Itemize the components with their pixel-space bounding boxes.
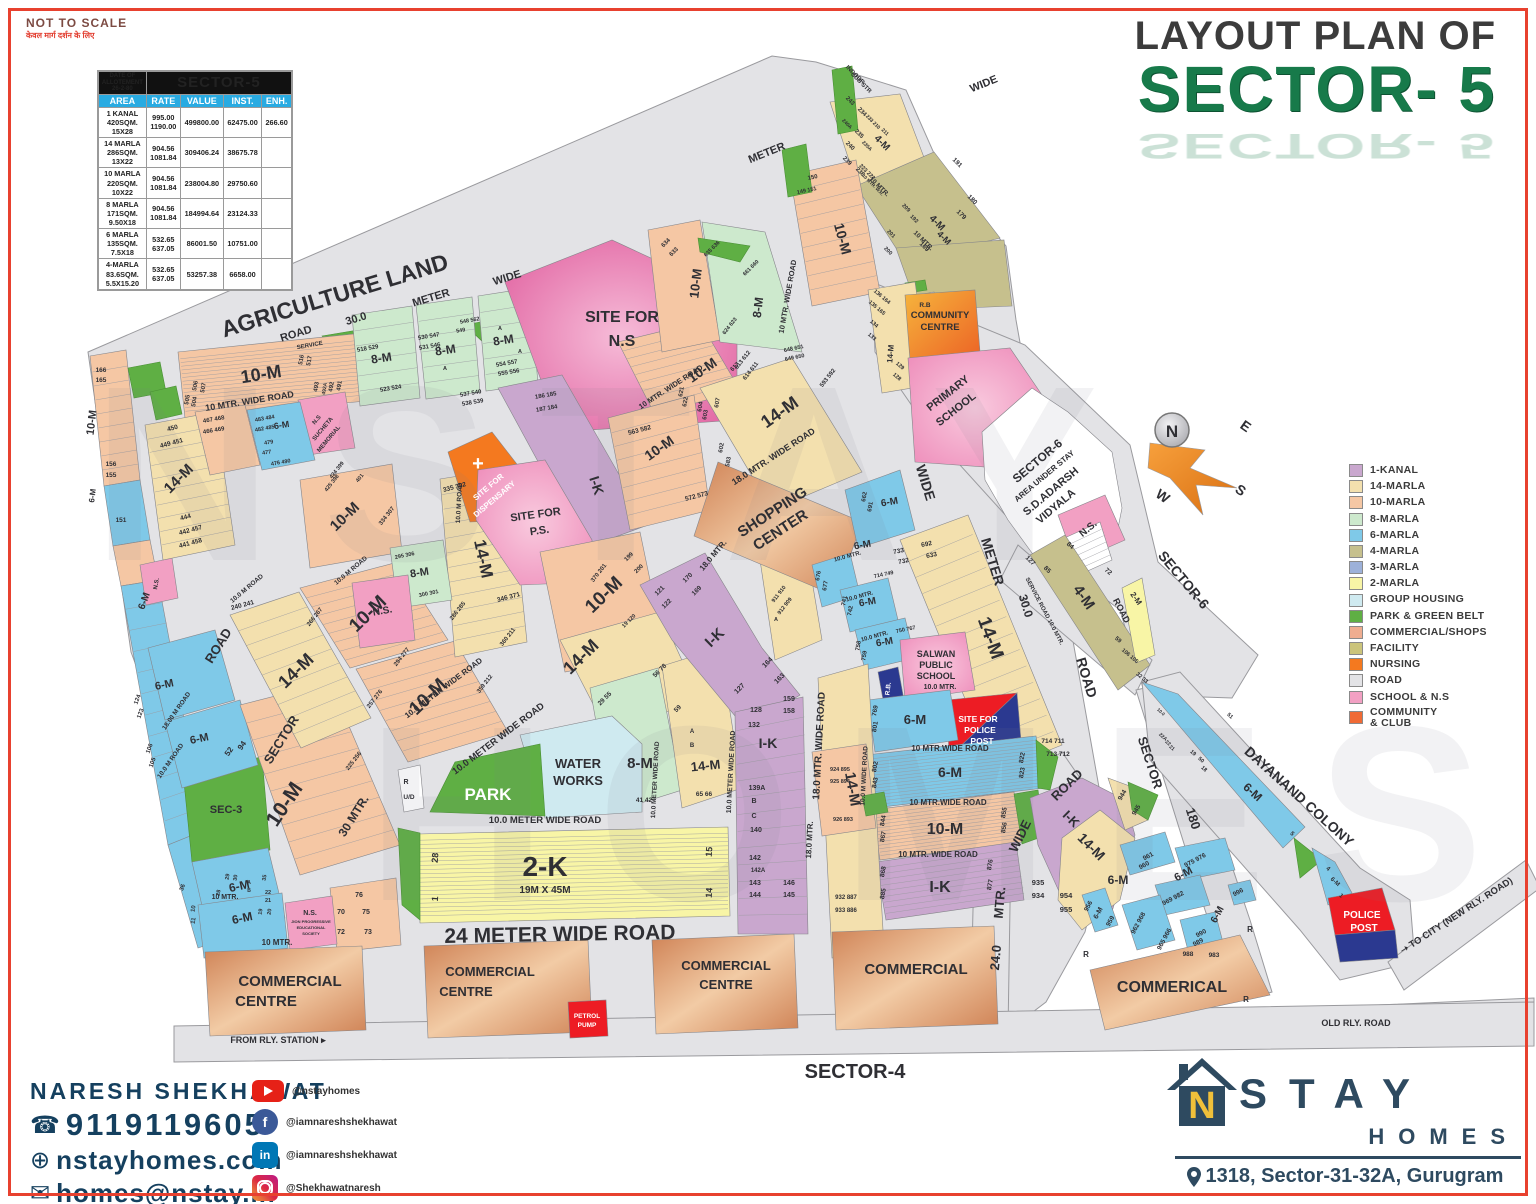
rate-cell: 10 MARLA 220SQM. 10X22 bbox=[99, 168, 147, 198]
rate-cell: 4-MARLA 83.6SQM. 5.5X15.20 bbox=[99, 259, 147, 289]
map-label: 165 bbox=[96, 377, 107, 384]
table-sector-title: SECTOR-5 bbox=[146, 72, 291, 95]
map-label: 70 bbox=[337, 909, 345, 916]
not-to-scale-note: NOT TO SCALE केवल मार्ग दर्शन के लिए bbox=[26, 16, 127, 41]
legend-label: 3-MARLA bbox=[1370, 562, 1419, 573]
map-label: 8-M bbox=[627, 755, 653, 772]
legend-item: 4-MARLA bbox=[1349, 545, 1487, 558]
legend-item: FACILITY bbox=[1349, 642, 1487, 655]
map-label: WORKS bbox=[553, 773, 603, 788]
map-label: U/D bbox=[403, 794, 415, 801]
page-title: LAYOUT PLAN OF SECTOR- 5 SECTOR- 5 bbox=[1135, 14, 1496, 171]
allotment-date: DATE OF ALLOTEMENT 26-2-80 bbox=[99, 72, 147, 95]
map-label: COMMUNITY bbox=[911, 310, 970, 321]
rate-cell bbox=[262, 168, 292, 198]
rate-row: 8 MARLA 171SQM. 9.50X18904.56 1081.84184… bbox=[99, 198, 292, 228]
map-label: 10 MTR.WIDE ROAD bbox=[909, 798, 987, 807]
rate-cell: 904.56 1081.84 bbox=[146, 198, 180, 228]
map-label: 144 bbox=[749, 892, 761, 899]
rate-row: 1 KANAL 420SQM. 15X28995.00 1190.0049980… bbox=[99, 107, 292, 137]
legend-item: 14-MARLA bbox=[1349, 480, 1487, 493]
map-label: 14 bbox=[704, 887, 715, 898]
legend-item: COMMUNITY & CLUB bbox=[1349, 707, 1487, 729]
rate-row: 10 MARLA 220SQM. 10X22904.56 1081.842380… bbox=[99, 168, 292, 198]
logo-divider bbox=[1175, 1156, 1521, 1159]
map-label: SITE FOR bbox=[958, 714, 997, 724]
map-label: 76 bbox=[355, 892, 363, 899]
map-label: 24.0 bbox=[987, 944, 1004, 971]
map-label: W bbox=[1153, 486, 1174, 507]
brand-address: 1318, Sector-31-32A, Gurugram bbox=[1206, 1165, 1504, 1188]
legend-item: SCHOOL & N.S bbox=[1349, 691, 1487, 704]
map-label: COMMERCIAL bbox=[238, 973, 341, 990]
legend-swatch bbox=[1349, 513, 1363, 526]
map-label: 142A bbox=[751, 868, 766, 874]
map-label: 166 bbox=[96, 367, 107, 374]
rate-cell: 62475.00 bbox=[223, 107, 261, 137]
map-label: 155 bbox=[106, 472, 117, 479]
map-label: S bbox=[1232, 481, 1249, 499]
map-label: 10-M bbox=[927, 821, 963, 838]
house-icon: N bbox=[1165, 1056, 1239, 1130]
col-area: AREA bbox=[99, 94, 147, 107]
legend-item: COMMERCIAL/SHOPS bbox=[1349, 626, 1487, 639]
map-label: PUMP bbox=[578, 1022, 597, 1029]
social-links: @nstayhomes f @iamnareshshekhawat in @ia… bbox=[252, 1080, 397, 1204]
map-label: R.B bbox=[919, 302, 931, 309]
map-label: 925 894 bbox=[830, 779, 851, 785]
rate-cell bbox=[262, 259, 292, 289]
map-label: 6-M bbox=[938, 764, 962, 780]
map-label: N.S. bbox=[303, 910, 317, 917]
map-label: MTR. bbox=[991, 886, 1009, 919]
legend-swatch bbox=[1349, 577, 1363, 590]
legend-item: ROAD bbox=[1349, 674, 1487, 687]
map-label: E bbox=[1237, 417, 1254, 435]
map-label: 145 bbox=[783, 892, 795, 899]
map-label: I-K bbox=[929, 879, 951, 896]
legend-swatch bbox=[1349, 610, 1363, 623]
website-link[interactable]: nstayhomes.com bbox=[56, 1145, 282, 1176]
map-label: POST bbox=[970, 736, 994, 746]
linkedin-icon[interactable]: in bbox=[252, 1142, 278, 1168]
rate-row: 4-MARLA 83.6SQM. 5.5X15.20532.65 637.055… bbox=[99, 259, 292, 289]
rate-cell: 29750.60 bbox=[223, 168, 261, 198]
legend-swatch bbox=[1349, 529, 1363, 542]
legend-items: 1-KANAL14-MARLA10-MARLA8-MARLA6-MARLA4-M… bbox=[1349, 464, 1487, 729]
phone-icon: ☎ bbox=[30, 1111, 60, 1140]
globe-icon: ⊕ bbox=[30, 1146, 50, 1175]
map-label: OLD RLY. ROAD bbox=[1321, 1018, 1391, 1028]
map-label: 28 bbox=[430, 852, 441, 863]
map-label: EDUCATIONAL bbox=[297, 925, 326, 930]
legend-item: 8-MARLA bbox=[1349, 513, 1487, 526]
rate-cell: 10751.00 bbox=[223, 229, 261, 259]
map-label: JION PROGRESSIVE bbox=[291, 919, 331, 924]
map-label: 146 bbox=[783, 880, 795, 887]
map-label: 955 bbox=[1060, 905, 1073, 914]
map-label: 924 895 bbox=[830, 767, 850, 773]
map-label: 983 bbox=[1209, 952, 1220, 959]
rate-cell: 38675.78 bbox=[223, 138, 261, 168]
legend-item: GROUP HOUSING bbox=[1349, 594, 1487, 607]
legend-swatch bbox=[1349, 642, 1363, 655]
map-label: 10 MTR. WIDE ROAD bbox=[898, 850, 978, 859]
legend-label: COMMUNITY & CLUB bbox=[1370, 707, 1437, 729]
rate-row: 6 MARLA 135SQM. 7.5X18532.65 637.0586001… bbox=[99, 229, 292, 259]
legend-swatch bbox=[1349, 711, 1363, 724]
legend-label: 4-MARLA bbox=[1370, 546, 1419, 557]
map-label: C bbox=[751, 813, 756, 820]
legend-item: 1-KANAL bbox=[1349, 464, 1487, 477]
mail-icon: ✉ bbox=[30, 1179, 50, 1204]
not-to-scale-text: NOT TO SCALE bbox=[26, 16, 127, 30]
brand-address-row: 1318, Sector-31-32A, Gurugram bbox=[1165, 1165, 1525, 1188]
legend-item: NURSING bbox=[1349, 658, 1487, 671]
map-label: A bbox=[247, 880, 251, 886]
map-label: 41 42 bbox=[636, 797, 653, 804]
map-label: CENTRE bbox=[699, 977, 753, 992]
legend-swatch bbox=[1349, 561, 1363, 574]
map-label: SALWAN bbox=[917, 649, 956, 659]
rate-cell: 904.56 1081.84 bbox=[146, 168, 180, 198]
col-rate: RATE bbox=[146, 94, 180, 107]
rate-cell: 6658.00 bbox=[223, 259, 261, 289]
phone-number[interactable]: 9119119605 bbox=[66, 1107, 265, 1143]
map-label: 132 bbox=[748, 722, 760, 729]
map-label: SCHOOL bbox=[917, 671, 956, 681]
rate-cell: 266.60 bbox=[262, 107, 292, 137]
linkedin-handle: @iamnareshshekhawat bbox=[286, 1150, 397, 1161]
rate-cell: 86001.50 bbox=[180, 229, 223, 259]
legend-label: FACILITY bbox=[1370, 643, 1419, 654]
instagram-handle: @Shekhawatnaresh bbox=[286, 1183, 381, 1194]
legend-label: COMMERCIAL/SHOPS bbox=[1370, 627, 1487, 638]
legend-item: 2-MARLA bbox=[1349, 577, 1487, 590]
col-value: VALUE bbox=[180, 94, 223, 107]
map-label: R bbox=[1247, 925, 1253, 934]
facebook-handle: @iamnareshshekhawat bbox=[286, 1117, 397, 1128]
map-label: B bbox=[247, 888, 251, 894]
legend-swatch bbox=[1349, 496, 1363, 509]
map-label: CENTRE bbox=[439, 984, 493, 999]
map-label: SOCIETY bbox=[302, 931, 320, 936]
rate-row: 14 MARLA 286SQM. 13X22904.56 1081.843094… bbox=[99, 138, 292, 168]
map-label: 19 bbox=[258, 908, 265, 915]
rate-cell bbox=[262, 138, 292, 168]
rate-cell: 309406.24 bbox=[180, 138, 223, 168]
map-label: R bbox=[403, 779, 408, 786]
legend-swatch bbox=[1349, 594, 1363, 607]
map-label: 75 bbox=[362, 909, 370, 916]
map-label: 158 bbox=[783, 708, 795, 715]
map-label: + bbox=[472, 453, 484, 475]
map-label: 934 bbox=[1032, 891, 1045, 900]
rate-cell: 238004.80 bbox=[180, 168, 223, 198]
rate-cell: 14 MARLA 286SQM. 13X22 bbox=[99, 138, 147, 168]
map-label: 159 bbox=[783, 696, 795, 703]
legend-item: 10-MARLA bbox=[1349, 496, 1487, 509]
map-label: PARK bbox=[465, 785, 513, 804]
rates-body: 1 KANAL 420SQM. 15X28995.00 1190.0049980… bbox=[99, 107, 292, 289]
title-line2: SECTOR- 5 bbox=[1135, 59, 1496, 120]
map-label: A bbox=[518, 349, 522, 355]
map-label: 954 bbox=[1060, 891, 1073, 900]
legend-label: 2-MARLA bbox=[1370, 578, 1419, 589]
map-label: 2-K bbox=[522, 851, 567, 882]
linkedin-row[interactable]: in @iamnareshshekhawat bbox=[252, 1142, 397, 1168]
table-columns: AREARATEVALUEINST.ENH. bbox=[99, 94, 292, 107]
legend-swatch bbox=[1349, 545, 1363, 558]
map-label: 140 bbox=[750, 827, 762, 834]
map-label: CENTRE bbox=[235, 993, 297, 1010]
map-label: I-K bbox=[759, 735, 778, 751]
legend-label: ROAD bbox=[1370, 675, 1402, 686]
title-reflection: SECTOR- 5 bbox=[1135, 131, 1496, 159]
instagram-icon[interactable] bbox=[252, 1175, 278, 1201]
rate-cell bbox=[262, 229, 292, 259]
rate-cell: 995.00 1190.00 bbox=[146, 107, 180, 137]
map-label: POLICE bbox=[1343, 910, 1381, 921]
map-label: 24 METER WIDE ROAD bbox=[444, 921, 675, 948]
rate-cell: 6 MARLA 135SQM. 7.5X18 bbox=[99, 229, 147, 259]
map-label: 30 bbox=[233, 874, 240, 881]
map-label: 6-M bbox=[1108, 873, 1129, 887]
map-label: 143 bbox=[749, 880, 761, 887]
legend-label: 14-MARLA bbox=[1370, 481, 1425, 492]
rate-cell: 53257.38 bbox=[180, 259, 223, 289]
rates-table: DATE OF ALLOTEMENT 26-2-80 SECTOR-5 AREA… bbox=[98, 71, 292, 290]
logo-stay: STAY bbox=[1239, 1070, 1432, 1118]
legend-swatch bbox=[1349, 658, 1363, 671]
map-label: SITE FOR bbox=[585, 309, 659, 326]
map-label: 65 66 bbox=[696, 791, 713, 798]
rate-cell: 532.65 637.05 bbox=[146, 229, 180, 259]
layout-plan-page: NSTAYHOMESAGRICULTURE LANDROAD30.0METERW… bbox=[0, 0, 1536, 1204]
map-label: 933 886 bbox=[835, 908, 857, 914]
legend-label: SCHOOL & N.S bbox=[1370, 692, 1449, 703]
map-label: 15 bbox=[704, 846, 715, 857]
youtube-handle: @nstayhomes bbox=[292, 1086, 360, 1097]
map-label: N.S bbox=[609, 333, 636, 350]
map-label: 713 712 bbox=[1046, 751, 1070, 758]
map-label: 151 bbox=[116, 517, 127, 524]
hindi-note: केवल मार्ग दर्शन के लिए bbox=[26, 30, 127, 41]
map-label: 19M X 45M bbox=[519, 885, 570, 896]
map-label: B bbox=[751, 798, 756, 805]
map-label: FROM RLY. STATION ▸ bbox=[230, 1035, 326, 1045]
map-label: 714 711 bbox=[1041, 738, 1065, 745]
map-label: WATER bbox=[555, 756, 602, 771]
legend-label: 8-MARLA bbox=[1370, 514, 1419, 525]
map-label: 935 bbox=[1032, 878, 1045, 887]
map-label: CENTRE bbox=[920, 322, 959, 333]
legend-label: GROUP HOUSING bbox=[1370, 594, 1464, 605]
logo-n: N bbox=[1188, 1085, 1215, 1127]
map-label: 926 893 bbox=[833, 817, 853, 823]
brand-logo: N STAY HOMES 1318, Sector-31-32A, Gurugr… bbox=[1165, 1056, 1525, 1188]
col-enh: ENH. bbox=[262, 94, 292, 107]
map-label: COMMERICAL bbox=[1117, 979, 1227, 996]
map-area bbox=[205, 946, 366, 1036]
youtube-row[interactable]: @nstayhomes bbox=[252, 1080, 397, 1102]
map-label: 21 bbox=[265, 898, 271, 904]
email-link[interactable]: homes@nstay.in bbox=[56, 1178, 275, 1204]
rate-cell: 8 MARLA 171SQM. 9.50X18 bbox=[99, 198, 147, 228]
rate-cell: 1 KANAL 420SQM. 15X28 bbox=[99, 107, 147, 137]
map-label: 20 bbox=[267, 908, 274, 915]
map-label: 10.0 MTR. bbox=[924, 684, 957, 691]
youtube-icon[interactable] bbox=[252, 1080, 284, 1102]
rate-cell: 904.56 1081.84 bbox=[146, 138, 180, 168]
legend-item: 6-MARLA bbox=[1349, 529, 1487, 542]
map-label: A bbox=[443, 366, 447, 372]
instagram-row[interactable]: @Shekhawatnaresh bbox=[252, 1175, 397, 1201]
map-label: 35 bbox=[262, 874, 269, 881]
map-label: COMMERCIAL bbox=[445, 964, 535, 979]
map-label: SECTOR-4 bbox=[805, 1061, 907, 1083]
facebook-icon[interactable]: f bbox=[252, 1109, 278, 1135]
map-label: 28 bbox=[216, 889, 223, 896]
map-label: SEC-3 bbox=[210, 804, 242, 816]
map-label: 10.0 METER WIDE ROAD bbox=[489, 815, 602, 826]
map-label: 6-M bbox=[87, 488, 98, 503]
rate-cell: 23124.33 bbox=[223, 198, 261, 228]
map-label: 191 bbox=[951, 157, 964, 170]
map-label: 988 bbox=[1183, 951, 1194, 958]
map-label: 8-M bbox=[750, 296, 766, 318]
map-label: 128 bbox=[750, 707, 762, 714]
legend-label: NURSING bbox=[1370, 659, 1421, 670]
map-label: 73 bbox=[364, 929, 372, 936]
legend-swatch bbox=[1349, 464, 1363, 477]
legend-swatch bbox=[1349, 691, 1363, 704]
map-label: 139A bbox=[749, 785, 766, 792]
map-label: N bbox=[1166, 422, 1178, 441]
legend-item: 3-MARLA bbox=[1349, 561, 1487, 574]
map-label: 10 MTR. bbox=[262, 938, 293, 947]
legend-label: 6-MARLA bbox=[1370, 530, 1419, 541]
legend-swatch bbox=[1349, 674, 1363, 687]
legend-swatch bbox=[1349, 480, 1363, 493]
map-label: COMMERCIAL bbox=[681, 958, 771, 973]
map-label: WIDE bbox=[968, 73, 999, 95]
map-label: 6-M bbox=[904, 712, 926, 727]
map-label: R bbox=[1083, 950, 1089, 959]
map-label: PUBLIC bbox=[919, 660, 953, 670]
map-label: POLICE bbox=[964, 725, 996, 735]
map-label: 142 bbox=[749, 855, 761, 862]
map-legend: 1-KANAL14-MARLA10-MARLA8-MARLA6-MARLA4-M… bbox=[1349, 464, 1487, 732]
rate-cell: 499800.00 bbox=[180, 107, 223, 137]
map-label: 14-M bbox=[885, 344, 896, 363]
rate-cell: 184994.64 bbox=[180, 198, 223, 228]
rate-cell bbox=[262, 198, 292, 228]
legend-swatch bbox=[1349, 626, 1363, 639]
legend-label: 1-KANAL bbox=[1370, 465, 1418, 476]
map-label: B bbox=[690, 743, 695, 749]
map-label: 156 bbox=[106, 461, 117, 468]
map-label: 29 bbox=[225, 873, 232, 880]
map-label: A bbox=[774, 617, 778, 623]
map-label: POST bbox=[1350, 923, 1377, 934]
map-label: 1 bbox=[430, 896, 440, 902]
legend-label: 10-MARLA bbox=[1370, 497, 1425, 508]
legend-label: PARK & GREEN BELT bbox=[1370, 611, 1484, 622]
map-label: A bbox=[690, 729, 695, 735]
map-label: 14-M bbox=[690, 757, 721, 775]
col-inst: INST. bbox=[223, 94, 261, 107]
map-label: R bbox=[1243, 995, 1249, 1004]
map-label: 72 bbox=[337, 929, 345, 936]
map-label: A bbox=[498, 326, 502, 332]
facebook-row[interactable]: f @iamnareshshekhawat bbox=[252, 1109, 397, 1135]
map-label: PETROL bbox=[574, 1013, 600, 1020]
map-label: 932 887 bbox=[835, 895, 857, 901]
map-label: COMMERCIAL bbox=[864, 961, 967, 978]
legend-item: PARK & GREEN BELT bbox=[1349, 610, 1487, 623]
map-label: 22 bbox=[265, 890, 271, 896]
rate-cell: 532.65 637.05 bbox=[146, 259, 180, 289]
location-pin-icon bbox=[1187, 1167, 1201, 1187]
